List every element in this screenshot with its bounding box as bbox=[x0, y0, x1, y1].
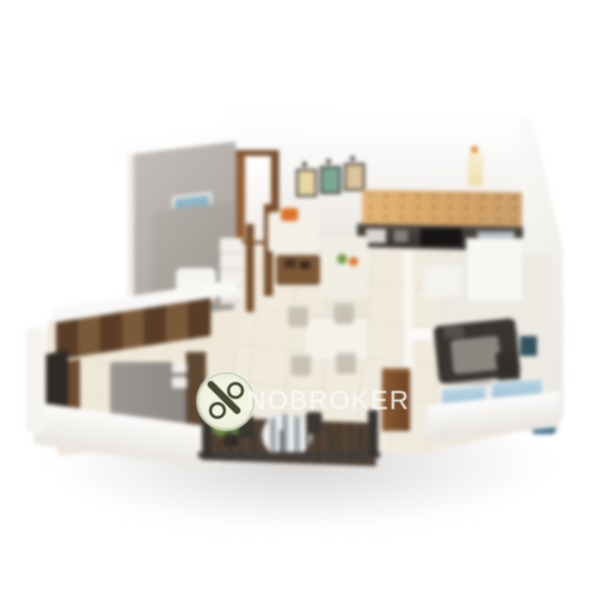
percent-dot-top bbox=[227, 382, 244, 399]
percent-dot-bottom bbox=[209, 402, 226, 419]
watermark-text: NOBROKER bbox=[247, 387, 410, 413]
floorplan-image: NOBROKER bbox=[0, 0, 600, 600]
nobroker-watermark: NOBROKER bbox=[0, 0, 600, 600]
